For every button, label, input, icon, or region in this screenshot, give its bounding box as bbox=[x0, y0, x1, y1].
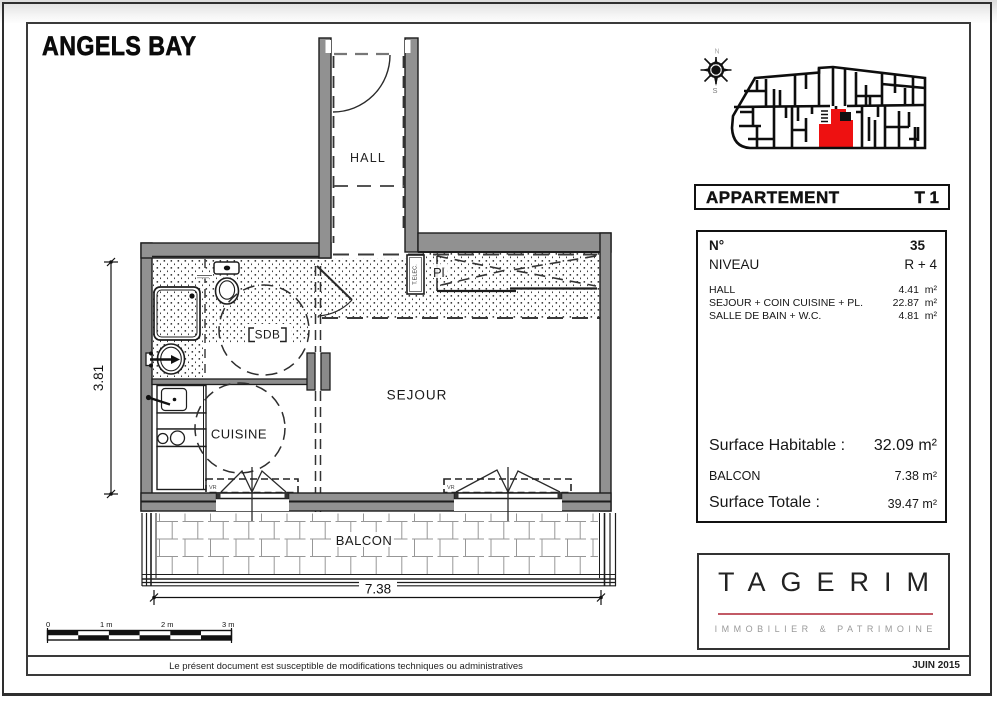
svg-text:CUISINE: CUISINE bbox=[211, 427, 267, 442]
svg-text:1 m: 1 m bbox=[100, 620, 113, 629]
svg-text:BALCON: BALCON bbox=[336, 533, 392, 548]
svg-text:2 m: 2 m bbox=[161, 620, 174, 629]
svg-text:7.38: 7.38 bbox=[365, 582, 391, 597]
svg-text:HALL: HALL bbox=[350, 151, 386, 165]
svg-text:VR: VR bbox=[209, 485, 217, 491]
svg-text:N: N bbox=[714, 49, 719, 56]
svg-text:T.ELEC.: T.ELEC. bbox=[413, 264, 419, 285]
svg-text:SEJOUR: SEJOUR bbox=[387, 388, 448, 403]
svg-text:3.81: 3.81 bbox=[91, 365, 106, 391]
svg-text:0: 0 bbox=[46, 620, 50, 629]
svg-text:S: S bbox=[712, 86, 717, 95]
svg-text:Pl.: Pl. bbox=[433, 265, 448, 280]
svg-text:3 m: 3 m bbox=[222, 620, 235, 629]
svg-text:SDB: SDB bbox=[255, 328, 281, 342]
svg-text:VR: VR bbox=[447, 485, 455, 491]
